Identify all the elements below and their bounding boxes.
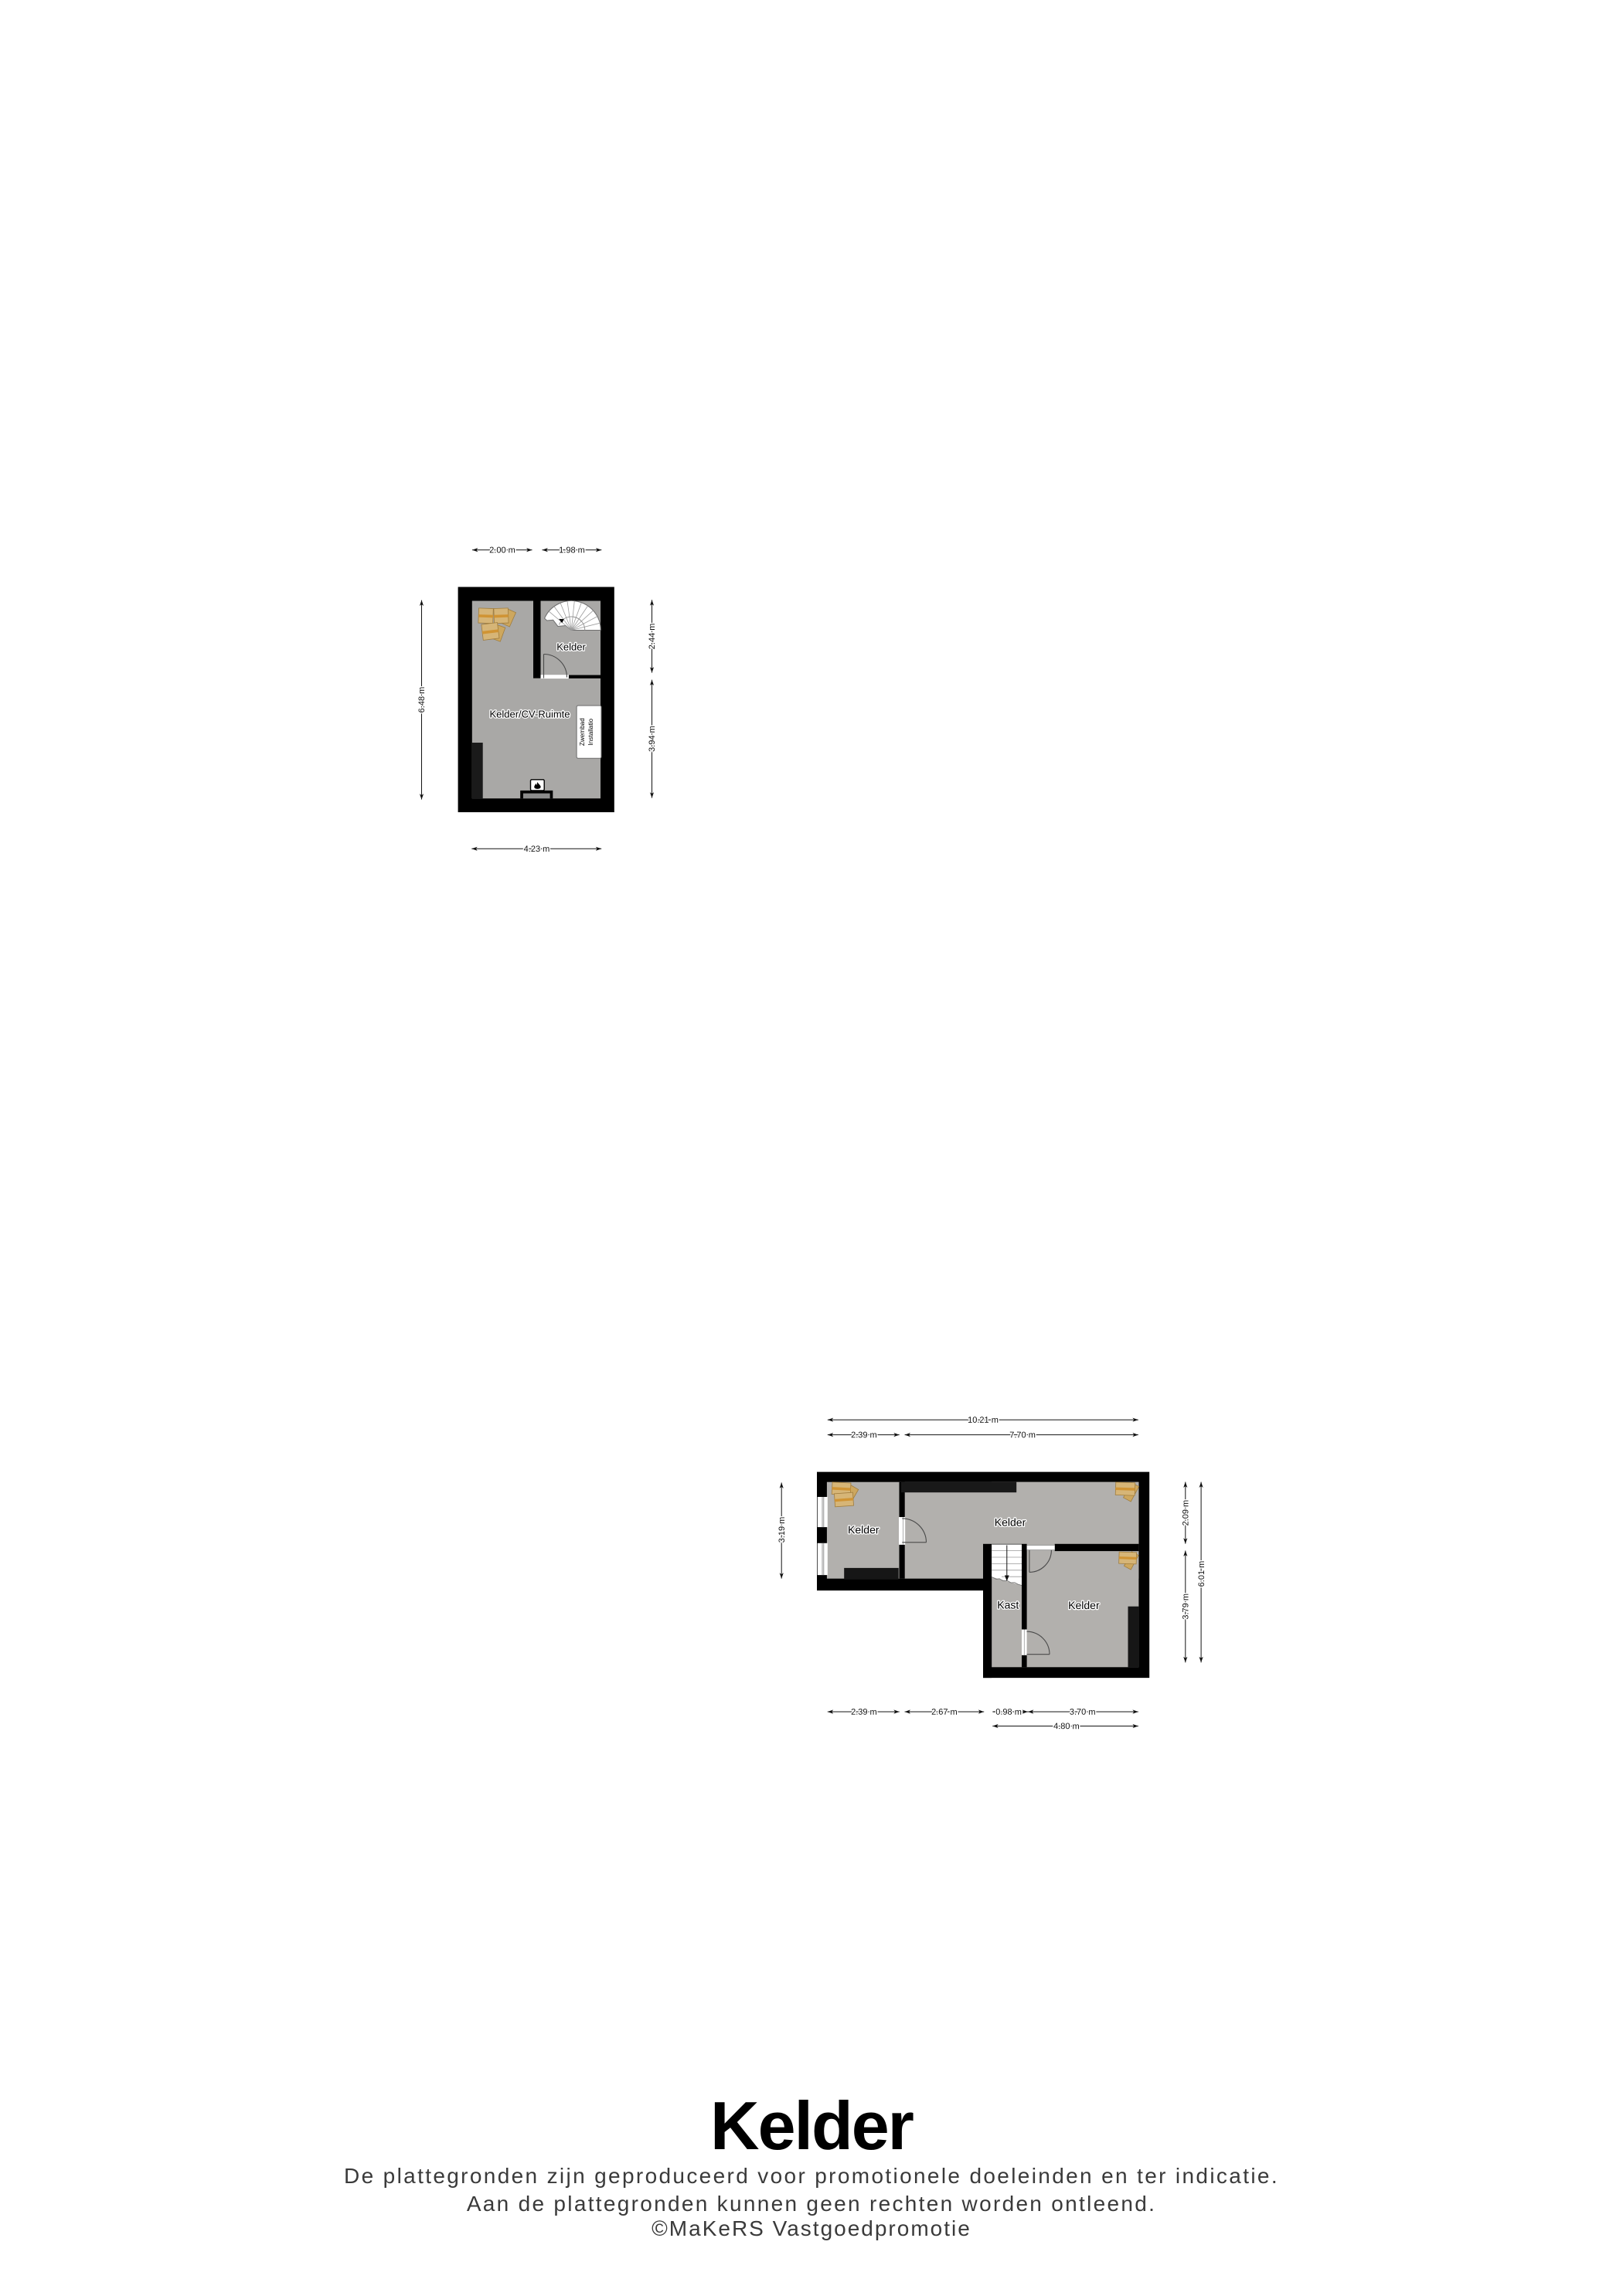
- svg-text:2.39 m: 2.39 m: [851, 1430, 877, 1440]
- svg-text:Kelder: Kelder: [848, 1523, 880, 1536]
- svg-text:2.44 m: 2.44 m: [648, 624, 657, 650]
- svg-text:6.48 m: 6.48 m: [417, 687, 427, 713]
- svg-text:Installatio: Installatio: [587, 718, 594, 745]
- svg-text:Kelder: Kelder: [1068, 1599, 1100, 1611]
- svg-text:2.00 m: 2.00 m: [489, 546, 515, 555]
- svg-text:Kelder/CV-Ruimte: Kelder/CV-Ruimte: [489, 708, 570, 719]
- svg-text:Zwembad: Zwembad: [579, 718, 586, 746]
- svg-text:6.01 m: 6.01 m: [1197, 1561, 1206, 1587]
- svg-text:10.21 m: 10.21 m: [968, 1416, 999, 1425]
- svg-text:0.98 m: 0.98 m: [995, 1708, 1022, 1717]
- svg-text:3.70 m: 3.70 m: [1070, 1708, 1096, 1717]
- svg-text:3.79 m: 3.79 m: [1182, 1594, 1191, 1620]
- svg-text:2.39 m: 2.39 m: [851, 1708, 877, 1717]
- svg-text:1.98 m: 1.98 m: [559, 546, 585, 555]
- svg-text:4.80 m: 4.80 m: [1053, 1722, 1080, 1731]
- svg-text:7.70 m: 7.70 m: [1009, 1430, 1036, 1440]
- svg-text:Kelder: Kelder: [995, 1516, 1026, 1529]
- svg-text:3.94 m: 3.94 m: [648, 726, 657, 752]
- svg-text:3.19 m: 3.19 m: [777, 1517, 787, 1543]
- svg-text:Kast: Kast: [997, 1598, 1019, 1611]
- svg-text:Kelder: Kelder: [556, 641, 586, 652]
- svg-text:2.67 m: 2.67 m: [931, 1708, 958, 1717]
- svg-text:2.09 m: 2.09 m: [1182, 1500, 1191, 1526]
- svg-text:4.23 m: 4.23 m: [524, 845, 550, 854]
